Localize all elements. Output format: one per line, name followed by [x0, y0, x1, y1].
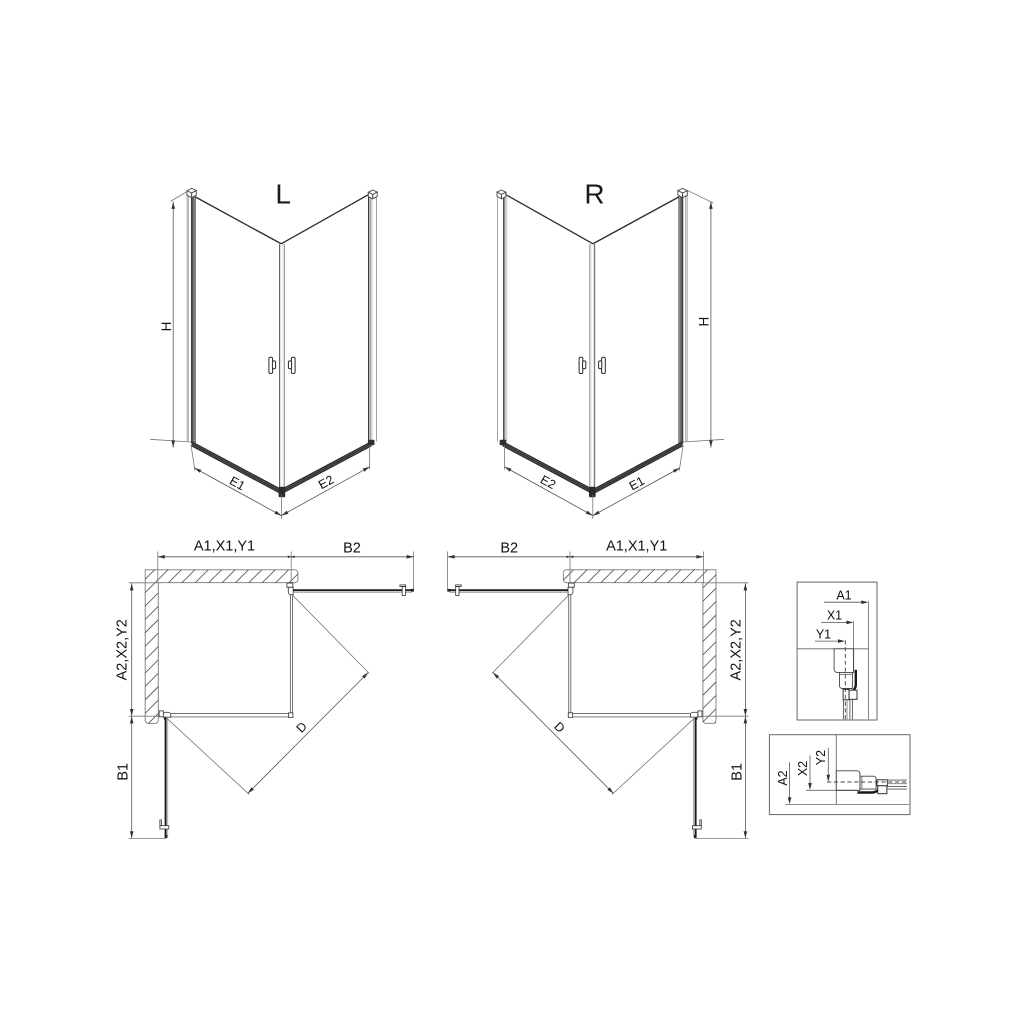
svg-text:A2: A2 [776, 770, 790, 785]
svg-text:Y1: Y1 [816, 627, 831, 641]
svg-text:B2: B2 [343, 540, 361, 556]
svg-text:X2: X2 [796, 761, 810, 776]
svg-text:A1,X1,Y1: A1,X1,Y1 [194, 538, 255, 554]
svg-text:H: H [697, 317, 712, 327]
svg-text:A2,X2,Y2: A2,X2,Y2 [115, 619, 131, 680]
svg-text:A1,X1,Y1: A1,X1,Y1 [606, 538, 667, 554]
svg-text:L: L [275, 178, 291, 209]
svg-text:X1: X1 [827, 608, 842, 622]
svg-text:B1: B1 [115, 763, 131, 781]
svg-text:R: R [584, 178, 604, 209]
svg-text:A2,X2,Y2: A2,X2,Y2 [728, 619, 744, 680]
svg-text:Y2: Y2 [814, 750, 828, 765]
svg-text:A1: A1 [836, 588, 851, 602]
svg-text:B2: B2 [500, 540, 518, 556]
svg-text:B1: B1 [729, 763, 745, 781]
svg-text:H: H [159, 322, 174, 332]
